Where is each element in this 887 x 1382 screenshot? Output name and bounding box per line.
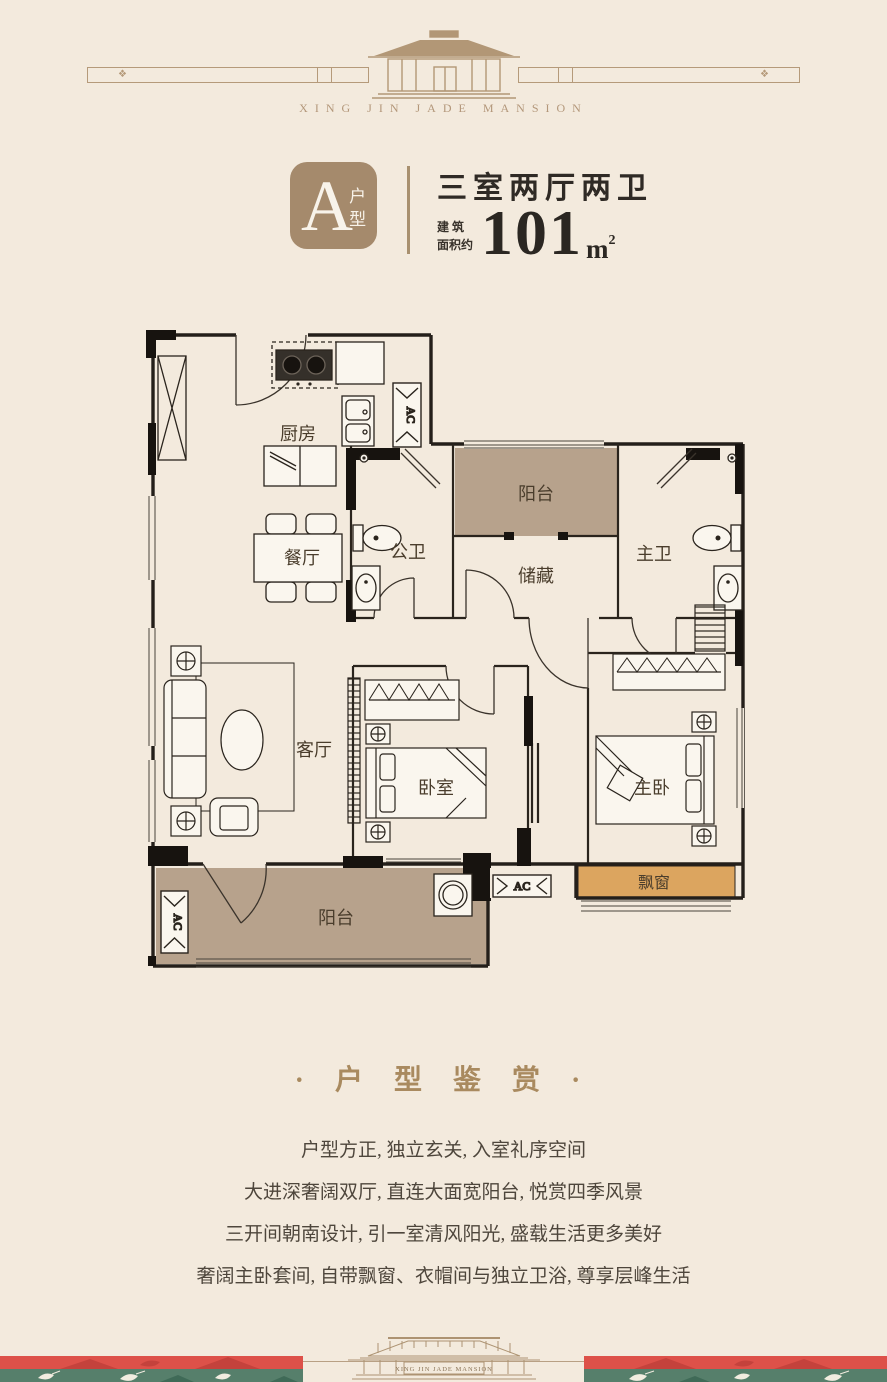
showcase-line: 户型方正, 独立玄关, 入室礼序空间 bbox=[0, 1130, 887, 1172]
area-unit: m2 bbox=[586, 234, 616, 263]
showcase-lines: 户型方正, 独立玄关, 入室礼序空间 大进深奢阔双厅, 直连大面宽阳台, 悦赏四… bbox=[0, 1130, 887, 1298]
footer-band-right bbox=[584, 1356, 887, 1382]
room-label-balcony-bottom: 阳台 bbox=[318, 908, 354, 928]
room-label-storage: 储藏 bbox=[518, 566, 554, 586]
showcase-line: 奢阔主卧套间, 自带飘窗、衣帽间与独立卫浴, 尊享层峰生活 bbox=[0, 1256, 887, 1298]
showcase-title: · 户 型 鉴 赏 · bbox=[0, 1058, 887, 1098]
room-label-bay-window: 飘窗 bbox=[638, 874, 670, 892]
doors bbox=[203, 335, 696, 923]
vertical-divider bbox=[407, 166, 410, 254]
room-label-master-bedroom: 主卧 bbox=[634, 778, 670, 798]
showcase-line: 大进深奢阔双厅, 直连大面宽阳台, 悦赏四季风景 bbox=[0, 1172, 887, 1214]
area-label: 建 筑 面积约 bbox=[437, 218, 473, 255]
room-label-dining: 餐厅 bbox=[284, 548, 320, 568]
area-value: 101 bbox=[481, 204, 583, 263]
toilet-icon bbox=[353, 525, 363, 551]
brand-name-footer: XING JIN JADE MANSION bbox=[395, 1366, 493, 1373]
floorplan-poster: ❖ ❖ XING JIN JADE MANSION A 户型 三室两厅两卫 建 … bbox=[0, 0, 887, 1382]
sofa-icon bbox=[164, 680, 206, 798]
ac-unit-bottom-left: AC bbox=[161, 891, 188, 953]
floor-plan: AC AC AC bbox=[146, 328, 746, 986]
crane-band-red bbox=[584, 1356, 887, 1369]
closet-icon bbox=[695, 605, 725, 651]
svg-text:AC: AC bbox=[171, 914, 185, 931]
crane-band-green bbox=[584, 1369, 887, 1382]
master-bedroom-zone bbox=[596, 605, 725, 846]
header-right-bar: ❖ bbox=[518, 67, 800, 83]
room-label-bedroom: 卧室 bbox=[418, 778, 454, 798]
bedroom-zone bbox=[365, 680, 486, 842]
tv-cabinet-icon bbox=[348, 678, 360, 823]
flower-ornament-icon: ❖ bbox=[760, 70, 769, 80]
washing-machine-icon bbox=[434, 874, 472, 916]
room-label-public-bath: 公卫 bbox=[390, 542, 426, 562]
area-row: 建 筑 面积约 101 m2 bbox=[437, 204, 616, 263]
room-label-balcony-top: 阳台 bbox=[518, 484, 554, 504]
brand-name-top: XING JIN JADE MANSION bbox=[0, 101, 887, 116]
crane-band-red bbox=[0, 1356, 303, 1369]
public-bath-zone bbox=[352, 454, 401, 610]
coffee-table-icon bbox=[221, 710, 263, 770]
ac-unit-bottom-middle: AC bbox=[490, 868, 554, 898]
room-label-kitchen: 厨房 bbox=[280, 424, 316, 444]
svg-text:AC: AC bbox=[404, 407, 418, 424]
unit-type-badge: A 户型 bbox=[290, 162, 377, 249]
room-label-master-bath: 主卫 bbox=[636, 544, 672, 564]
ac-unit-top: AC bbox=[393, 383, 421, 447]
header-left-bar: ❖ bbox=[87, 67, 369, 83]
kitchen-sink-icon bbox=[342, 396, 374, 446]
unit-letter: A bbox=[301, 164, 353, 248]
crane-band-green bbox=[0, 1369, 303, 1382]
svg-text:AC: AC bbox=[514, 879, 531, 893]
palace-icon: XING JIN JADE MANSION bbox=[348, 1331, 540, 1382]
flower-ornament-icon: ❖ bbox=[118, 70, 127, 80]
unit-suffix: 户型 bbox=[349, 186, 367, 232]
room-label-living: 客厅 bbox=[296, 740, 332, 760]
showcase-line: 三开间朝南设计, 引一室清风阳光, 盛载生活更多美好 bbox=[0, 1214, 887, 1256]
toilet-icon bbox=[731, 525, 741, 551]
footer-band-left bbox=[0, 1356, 303, 1382]
pavilion-icon bbox=[358, 26, 530, 100]
master-bath-zone bbox=[693, 454, 742, 610]
